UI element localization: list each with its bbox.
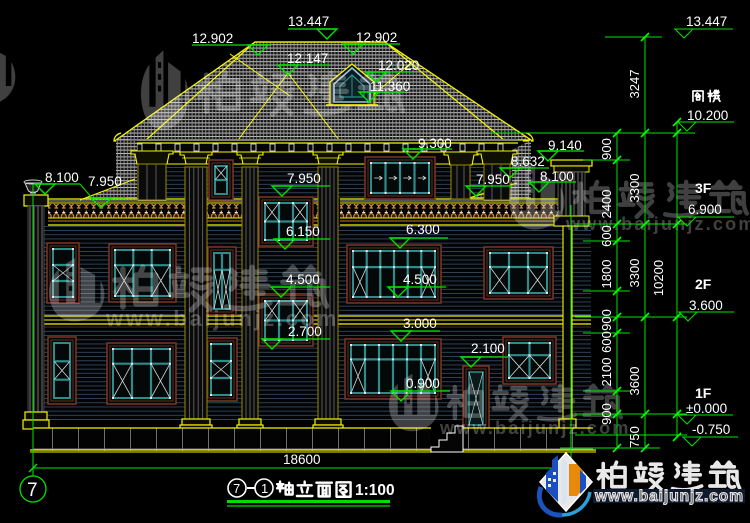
svg-text:0.900: 0.900: [406, 376, 440, 391]
svg-text:2.100: 2.100: [471, 341, 505, 356]
svg-text:1: 1: [261, 481, 268, 496]
svg-text:900: 900: [599, 309, 614, 331]
svg-text:1:100: 1:100: [355, 482, 395, 499]
svg-text:6.900: 6.900: [688, 202, 722, 217]
svg-text:2400: 2400: [599, 190, 614, 219]
svg-text:7.950: 7.950: [287, 171, 321, 186]
svg-text:2100: 2100: [599, 358, 614, 387]
svg-text:7: 7: [27, 480, 38, 501]
svg-text:7: 7: [233, 481, 240, 496]
svg-text:600: 600: [599, 225, 614, 247]
svg-text:3.000: 3.000: [403, 316, 437, 331]
svg-text:12.147: 12.147: [287, 51, 328, 66]
svg-text:13.447: 13.447: [686, 14, 727, 29]
svg-text:3F: 3F: [695, 180, 712, 196]
svg-text:2.700: 2.700: [288, 324, 322, 339]
svg-text:±0.000: ±0.000: [686, 401, 727, 416]
svg-text:12.902: 12.902: [356, 30, 397, 45]
svg-text:-0.750: -0.750: [692, 422, 730, 437]
svg-text:900: 900: [599, 138, 614, 160]
svg-text:10200: 10200: [651, 260, 666, 296]
svg-text:600: 600: [599, 331, 614, 353]
svg-text:12.902: 12.902: [192, 31, 233, 46]
svg-text:18600: 18600: [283, 452, 321, 467]
svg-text:3300: 3300: [627, 259, 642, 288]
svg-text:4.500: 4.500: [286, 272, 320, 287]
svg-text:7.950: 7.950: [476, 172, 510, 187]
svg-text:6.150: 6.150: [286, 224, 320, 239]
svg-text:10.200: 10.200: [687, 108, 728, 123]
svg-text:900: 900: [599, 403, 614, 425]
svg-text:13.447: 13.447: [288, 14, 329, 29]
svg-text:6.300: 6.300: [406, 222, 440, 237]
svg-text:3247: 3247: [627, 70, 642, 99]
svg-text:1F: 1F: [695, 385, 712, 401]
svg-text:8.100: 8.100: [45, 170, 79, 185]
svg-text:3.600: 3.600: [689, 298, 723, 313]
svg-text:3300: 3300: [627, 174, 642, 203]
svg-text:4.500: 4.500: [403, 272, 437, 287]
svg-text:12.020: 12.020: [378, 58, 419, 73]
svg-text:2F: 2F: [695, 276, 712, 292]
svg-text:8.632: 8.632: [511, 154, 545, 169]
svg-text:1800: 1800: [599, 260, 614, 289]
svg-text:7.950: 7.950: [88, 174, 122, 189]
svg-text:www.baijunjz.com: www.baijunjz.com: [594, 488, 743, 505]
svg-text:750: 750: [627, 426, 642, 448]
svg-text:3600: 3600: [627, 367, 642, 396]
